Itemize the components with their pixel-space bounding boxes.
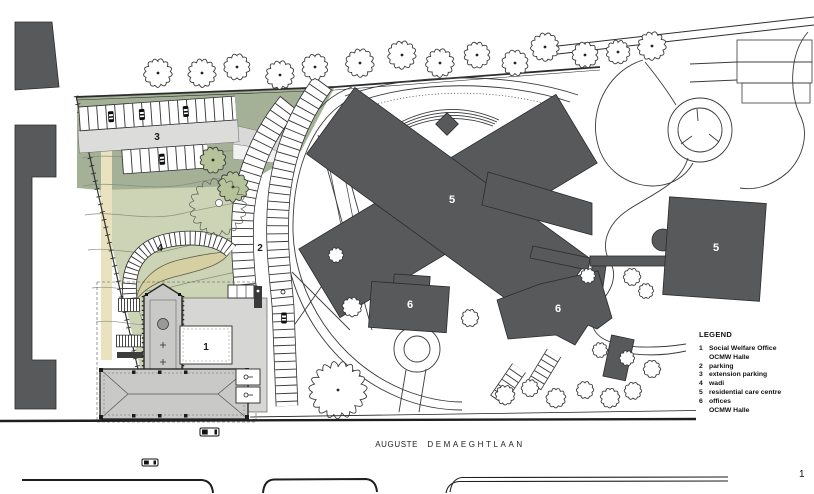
corner-mark: 1 [799,469,805,480]
tree-center-dot [337,389,340,392]
legend-item-5: 5 residential care centre [699,389,814,398]
label-parking-2: 2 [257,243,263,254]
tree-center-dot [544,46,547,49]
label-building-5-east: 5 [713,242,719,254]
legend: LEGEND 1 Social Welfare Office OCMW Hall… [699,330,814,415]
legend-item-3: 3 extension parking [699,371,814,380]
tree-icon [216,200,223,207]
shrub-icon [495,386,515,405]
legend-item-6-sub: OCMW Halle [699,407,814,416]
shrub-icon [461,310,478,327]
legend-item-4: 4 wadi [699,380,814,389]
tree-center-dot [359,62,362,65]
shrub-icon [521,380,539,397]
building-1-social-welfare-office [97,282,267,422]
label-wadi-4: 4 [157,243,163,254]
building-west-upper [15,22,59,90]
legend-item-6: 6 offices [699,398,814,407]
building-5-east-wing [652,197,766,302]
car-icon [200,428,219,436]
footpath-beige [101,144,112,360]
tree-center-dot [476,54,479,57]
parked-car-icon [108,111,114,122]
label-parking-3: 3 [154,132,160,143]
legend-item-1-sub: OCMW Halle [699,354,814,363]
street-label: AUGUSTE DEMAEGHTLAAN [340,440,560,449]
shrub-icon [580,268,595,283]
shrub-icon [638,284,653,299]
shrub-icon [576,382,593,399]
tree-center-dot [279,74,282,77]
label-building-6-right: 6 [555,303,561,315]
parked-car-icon [183,106,189,117]
circular-garden-feature [668,98,732,162]
tree-center-dot [514,62,517,65]
parked-car-icon [159,154,165,165]
main-block [99,368,249,419]
tree-center-dot [584,54,587,57]
label-building-1: 1 [203,342,209,353]
shrub-icon [592,343,607,358]
legend-item-2: 2 parking [699,363,814,372]
street-name-secondary: DEMAEGHTLAAN [427,440,524,449]
legend-title: LEGEND [699,330,814,339]
parked-car-icon [139,109,145,120]
tree-center-dot [617,51,620,54]
parking-3-north-row [79,108,236,119]
tree-center-dot [212,159,215,162]
label-building-5: 5 [449,194,455,206]
tree-center-dot [401,54,404,57]
label-building-6-left: 6 [407,299,413,311]
building-west-lower [15,125,56,409]
street-auguste-demaeghtlaan [0,411,728,494]
parked-car-icon [281,313,287,324]
tree-center-dot [651,45,654,48]
tree-center-dot [439,62,442,65]
tree-center-dot [236,66,239,69]
shrub-icon [624,382,641,399]
tree-center-dot [314,66,317,69]
shrub-icon [643,360,660,377]
legend-item-1: 1 Social Welfare Office [699,345,814,354]
site-plan-canvas: 1 2 3 4 5 5 6 6 LEGEND 1 Social Welfare … [0,0,814,494]
tree-center-dot [157,72,160,75]
shrub-icon [600,388,619,408]
shrub-icon [623,268,641,285]
shrub-icon [619,351,634,366]
site-plan-drawing: 1 2 3 4 5 5 6 6 [0,0,814,494]
shrub-icon [546,388,566,407]
street-name-primary: AUGUSTE [375,440,418,449]
shrub-icon [328,248,343,263]
tree-center-dot [201,72,204,75]
visitor-row [534,353,554,386]
parking-3-south-row [122,156,208,162]
car-icon [142,459,158,466]
